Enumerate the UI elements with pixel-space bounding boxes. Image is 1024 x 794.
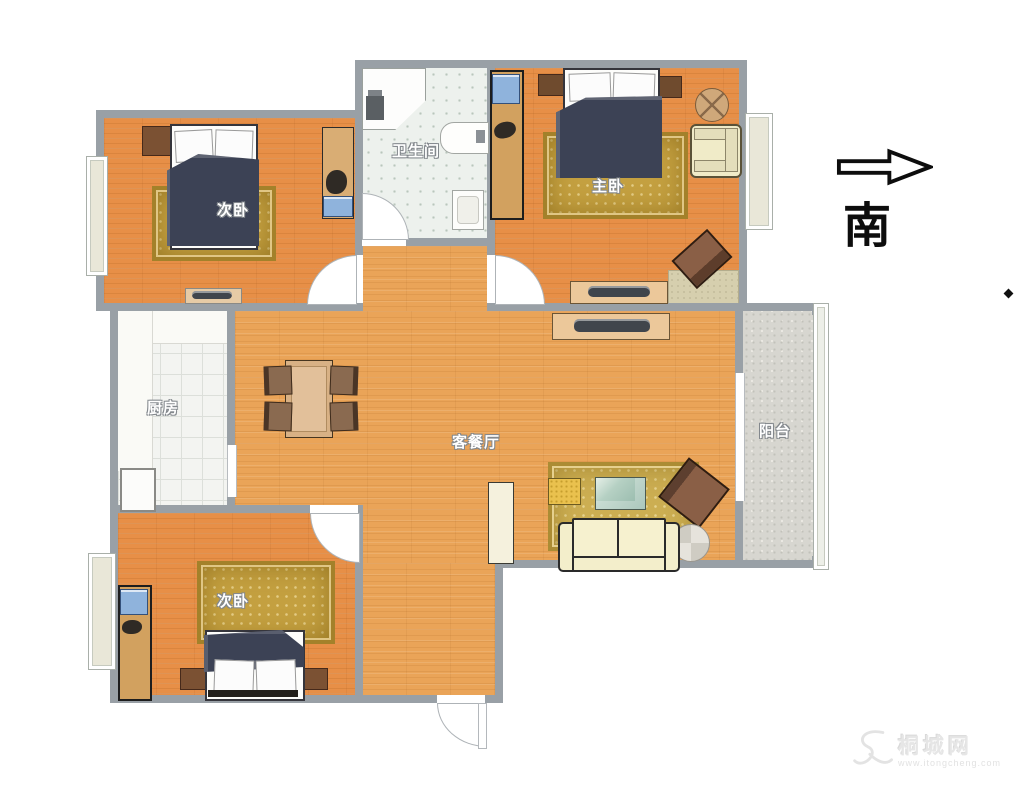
watermark-site-url: www.itongcheng.com bbox=[898, 758, 1001, 768]
nightstand bbox=[180, 668, 208, 690]
pillow bbox=[255, 659, 296, 692]
armchair-arm bbox=[694, 128, 728, 140]
floor-plan: 次卧 主卧 卫生间 厨房 客餐厅 阳台 次卧 南 桐城网 www.itongch… bbox=[0, 0, 1024, 794]
watermark: 桐城网 www.itongcheng.com bbox=[850, 724, 1022, 780]
window-pane bbox=[90, 160, 104, 272]
balcony-window bbox=[813, 303, 829, 570]
bedroom-top-window bbox=[86, 156, 108, 276]
dining-chair bbox=[264, 366, 293, 396]
master-armchair bbox=[690, 124, 742, 178]
sofa-cushion bbox=[572, 518, 621, 558]
living-tv bbox=[574, 319, 650, 332]
sofa bbox=[558, 518, 676, 570]
kitchen-counter-left bbox=[118, 311, 153, 471]
bedroom-bottom-door-gap bbox=[310, 505, 358, 513]
label-master-bedroom: 主卧 bbox=[592, 175, 624, 196]
washbasin-faucet bbox=[476, 130, 485, 143]
compass-arrow-icon bbox=[836, 146, 933, 188]
bedroom-bottom-window bbox=[88, 553, 116, 670]
hallway-cabinet bbox=[488, 482, 514, 564]
entry-door-gap bbox=[437, 695, 485, 703]
dining-table bbox=[285, 360, 333, 438]
master-door-gap bbox=[487, 255, 495, 303]
armchair-back bbox=[725, 128, 738, 172]
label-bathroom: 卫生间 bbox=[392, 140, 440, 161]
wardrobe-computer bbox=[492, 74, 520, 104]
dining-chair bbox=[330, 402, 359, 432]
desk-chair bbox=[326, 170, 347, 194]
label-kitchen: 厨房 bbox=[147, 397, 179, 418]
master-tv bbox=[588, 286, 650, 297]
wall-top bbox=[355, 60, 747, 68]
window-pane bbox=[817, 307, 825, 566]
dining-chair bbox=[264, 402, 293, 432]
master-bedroom-window bbox=[745, 113, 773, 230]
kitchen-appliance bbox=[120, 468, 156, 512]
entry-door-leaf bbox=[478, 703, 487, 749]
sofa-cushion bbox=[617, 518, 666, 558]
wardrobe-computer bbox=[120, 589, 148, 615]
label-balcony: 阳台 bbox=[759, 420, 791, 441]
window-pane bbox=[92, 557, 112, 666]
label-bedroom-bottom: 次卧 bbox=[217, 590, 249, 611]
kitchen-sliding-door bbox=[227, 445, 237, 497]
entry-corridor-floor bbox=[362, 563, 495, 695]
balcony-sliding-door bbox=[735, 373, 745, 501]
armchair-arm bbox=[694, 160, 728, 172]
tv bbox=[192, 291, 232, 299]
blanket bbox=[556, 96, 662, 178]
desk-computer bbox=[323, 196, 353, 217]
coffee-table bbox=[595, 477, 646, 510]
label-living-dining: 客餐厅 bbox=[452, 431, 500, 452]
wall-corridor-east bbox=[495, 560, 503, 703]
compass-south-label: 南 bbox=[843, 186, 891, 256]
wall-bedroom-top-north bbox=[96, 110, 362, 118]
shower-head bbox=[366, 96, 384, 120]
watermark-site-name: 桐城网 bbox=[898, 730, 973, 760]
side-table-yellow bbox=[548, 478, 581, 505]
pillow bbox=[213, 659, 254, 692]
jacket bbox=[122, 620, 142, 634]
bed-master bbox=[563, 68, 660, 178]
hallway-floor bbox=[362, 246, 487, 311]
label-bedroom-top: 次卧 bbox=[217, 199, 249, 220]
headboard bbox=[208, 690, 298, 697]
round-plant-table bbox=[695, 88, 729, 122]
dining-chair bbox=[330, 366, 359, 396]
dining-table-top bbox=[291, 366, 327, 432]
toilet-seat bbox=[457, 196, 479, 224]
bed-top-bedroom bbox=[170, 124, 258, 250]
window-pane bbox=[749, 117, 769, 226]
bed-bottom-bedroom bbox=[205, 630, 305, 701]
map-dot bbox=[1004, 289, 1014, 299]
watermark-logo-icon bbox=[850, 726, 894, 776]
